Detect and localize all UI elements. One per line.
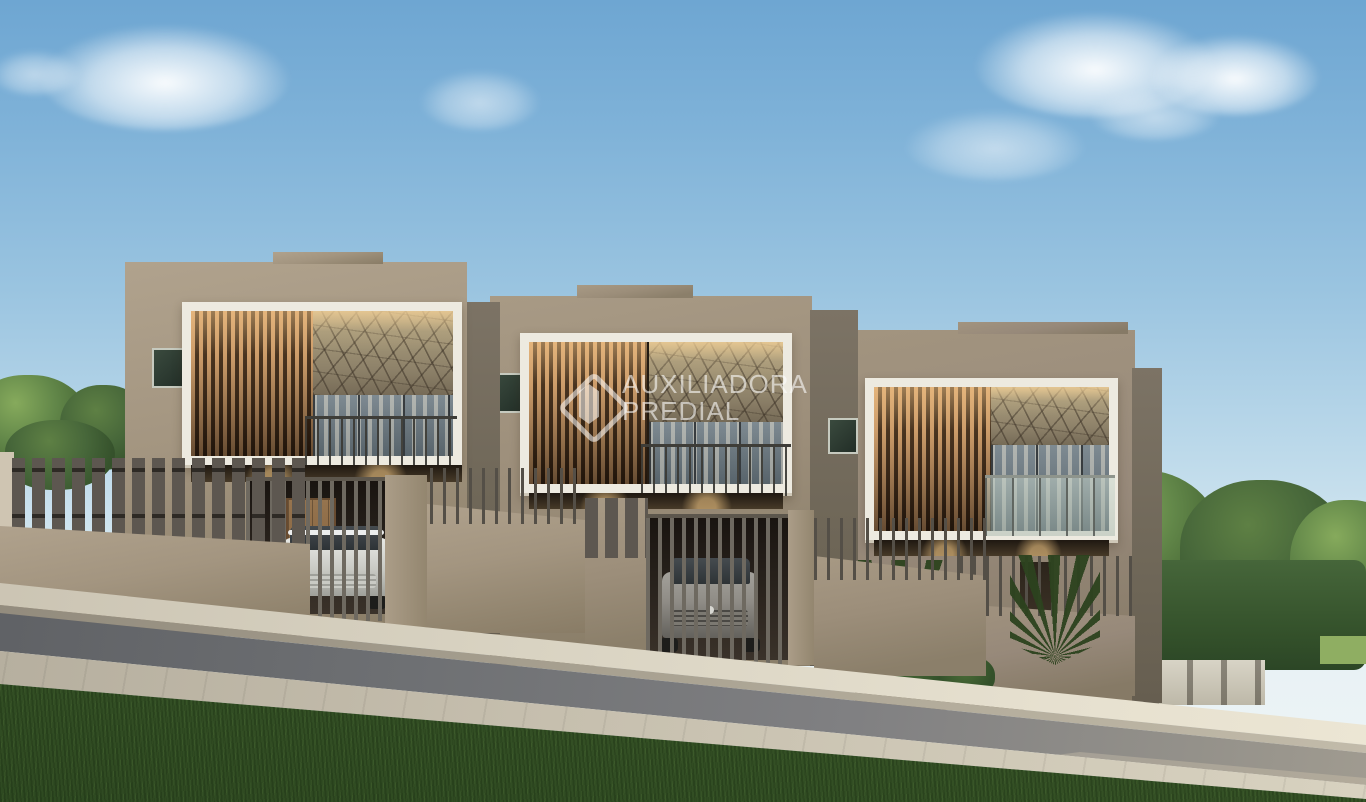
house2-gate-pillar [788,510,814,665]
house1-wood-slats [191,311,313,456]
house3-balcony-glass-railing [985,475,1115,536]
house1-gate-pillar [385,475,427,627]
architectural-render-image: AUXILIADORA PREDIAL [0,0,1366,802]
cloud-wisp [1090,90,1220,140]
house2-side-window [828,418,858,454]
fence-right-of-house1 [430,468,582,524]
house3-parapet-step [958,322,1128,334]
watermark: AUXILIADORA PREDIAL [622,371,808,425]
house3-wood-slats [874,387,991,531]
left-slat-fence-slots [12,468,308,472]
house1-stone-wall [313,311,453,395]
fence-right-of-house2 [814,518,986,580]
watermark-line2: PREDIAL [622,398,808,425]
house2-slat-fence [585,498,648,558]
house1-balcony-railing [305,416,457,466]
left-slat-fence-slots [12,514,308,518]
cloud-wisp [905,110,1085,180]
palm-tree [1010,555,1100,665]
house2-balcony-railing [641,444,791,496]
house3-side-wall [1132,368,1162,703]
lawn-glimpse [1320,636,1366,664]
house3-stone-wall [991,387,1109,445]
house1-parapet-step [273,252,383,264]
house2-gate [646,514,790,666]
watermark-gem-icon [579,384,599,424]
house2-parapet-step [577,285,693,298]
watermark-line1: AUXILIADORA [622,371,808,398]
cloud [420,70,540,130]
